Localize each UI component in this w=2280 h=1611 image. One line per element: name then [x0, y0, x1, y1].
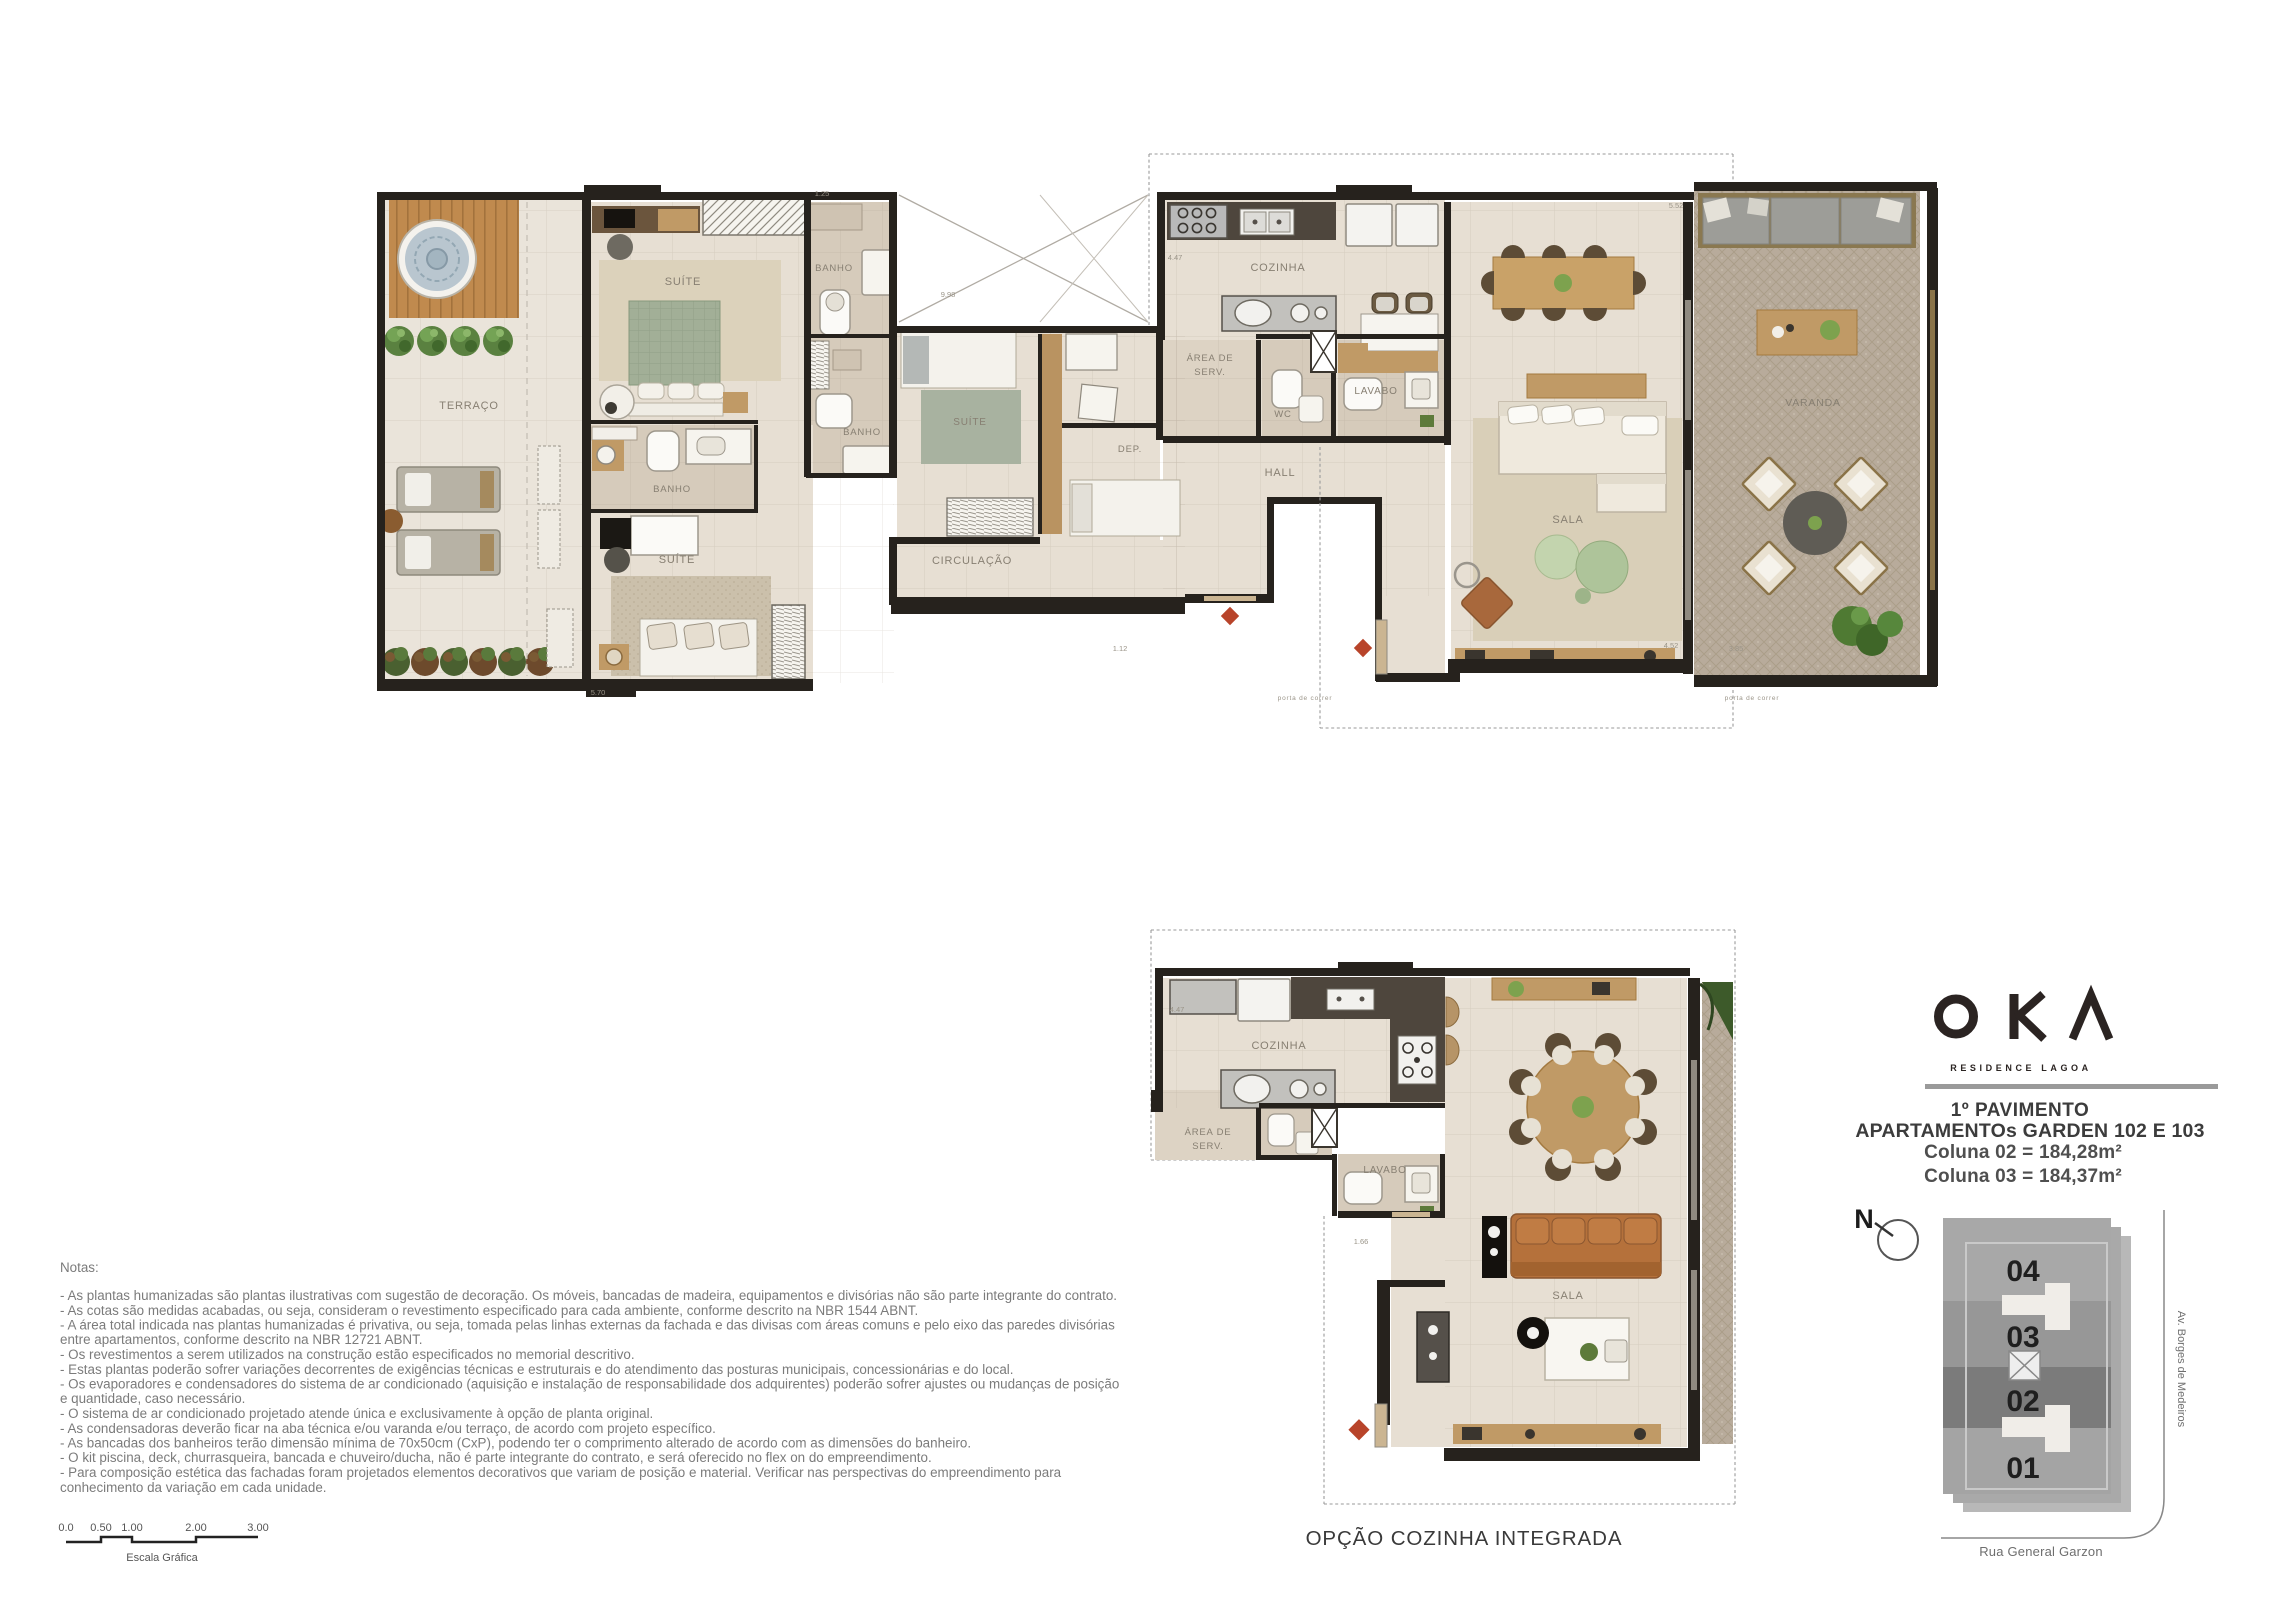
svg-text:entre apartamentos, conforme d: entre apartamentos, conforme descrito na…	[60, 1332, 422, 1347]
svg-text:5.70: 5.70	[591, 688, 606, 697]
svg-text:COZINHA: COZINHA	[1251, 1040, 1306, 1052]
svg-text:DEP.: DEP.	[1118, 444, 1142, 455]
svg-text:- Para composição estética das: - Para composição estética das fachadas …	[60, 1465, 1062, 1480]
svg-text:0.0: 0.0	[58, 1522, 73, 1534]
svg-text:TERRAÇO: TERRAÇO	[439, 400, 498, 412]
svg-text:0.50: 0.50	[90, 1522, 111, 1534]
svg-text:BANHO: BANHO	[653, 484, 691, 495]
svg-text:3.85: 3.85	[1729, 644, 1744, 653]
svg-text:e quantidade, caso necessário.: e quantidade, caso necessário.	[60, 1391, 245, 1406]
svg-text:LAVABO: LAVABO	[1354, 386, 1397, 397]
svg-text:Escala Gráfica: Escala Gráfica	[126, 1552, 198, 1564]
svg-text:Coluna 02 = 184,28m²: Coluna 02 = 184,28m²	[1924, 1142, 2122, 1163]
svg-text:1.00: 1.00	[121, 1522, 142, 1534]
svg-text:Notas:: Notas:	[60, 1260, 99, 1275]
svg-text:02: 02	[2006, 1385, 2039, 1418]
svg-text:APARTAMENTOs GARDEN 102 E 103: APARTAMENTOs GARDEN 102 E 103	[1855, 1120, 2204, 1142]
svg-text:CIRCULAÇÃO: CIRCULAÇÃO	[932, 554, 1012, 567]
svg-text:1º PAVIMENTO: 1º PAVIMENTO	[1951, 1100, 2090, 1121]
svg-text:4.52: 4.52	[1664, 641, 1679, 650]
svg-text:5.52: 5.52	[1669, 201, 1684, 210]
svg-text:ÁREA DE: ÁREA DE	[1185, 1127, 1232, 1138]
svg-text:SUÍTE: SUÍTE	[665, 275, 701, 288]
svg-text:OPÇÃO COZINHA INTEGRADA: OPÇÃO COZINHA INTEGRADA	[1306, 1527, 1623, 1550]
svg-text:- Os revestimentos a serem uti: - Os revestimentos a serem utilizados na…	[60, 1347, 635, 1362]
svg-text:4.47: 4.47	[1168, 253, 1183, 262]
svg-text:- O kit piscina, deck, churras: - O kit piscina, deck, churrasqueira, ba…	[60, 1450, 932, 1465]
svg-text:1.25: 1.25	[815, 189, 830, 198]
svg-text:porta de correr: porta de correr	[1725, 695, 1780, 702]
svg-text:VARANDA: VARANDA	[1785, 397, 1841, 409]
svg-text:SALA: SALA	[1552, 514, 1583, 526]
svg-text:ÁREA DE: ÁREA DE	[1187, 353, 1234, 364]
svg-text:4.47: 4.47	[1170, 1005, 1185, 1014]
svg-text:porta de correr: porta de correr	[1278, 695, 1333, 702]
svg-text:- As condensadoras deverão fic: - As condensadoras deverão ficar na aba …	[60, 1421, 716, 1436]
svg-text:HALL: HALL	[1265, 467, 1296, 479]
svg-text:RESIDENCE LAGOA: RESIDENCE LAGOA	[1950, 1063, 2092, 1073]
svg-text:1.12: 1.12	[1113, 644, 1128, 653]
svg-text:- A área total indicada nas pl: - A área total indicada nas plantas huma…	[60, 1318, 1115, 1333]
svg-text:Rua General Garzon: Rua General Garzon	[1979, 1544, 2103, 1559]
svg-text:SERV.: SERV.	[1192, 1141, 1223, 1152]
svg-text:2.00: 2.00	[185, 1522, 206, 1534]
svg-text:04: 04	[2006, 1255, 2040, 1288]
svg-text:BANHO: BANHO	[843, 427, 881, 438]
svg-text:- As bancadas dos banheiros te: - As bancadas dos banheiros terão dimens…	[60, 1436, 971, 1451]
svg-text:- Os evaporadores e condensado: - Os evaporadores e condensadores do sis…	[60, 1377, 1119, 1392]
svg-text:SUÍTE: SUÍTE	[659, 553, 695, 566]
svg-text:- Estas plantas poderão sofrer: - Estas plantas poderão sofrer variações…	[60, 1362, 1014, 1377]
svg-text:3.00: 3.00	[247, 1522, 268, 1534]
svg-text:LAVABO: LAVABO	[1363, 1165, 1406, 1176]
svg-text:conhecimento da variação em ca: conhecimento da variação em cada unidade…	[60, 1480, 327, 1495]
svg-text:SALA: SALA	[1552, 1290, 1583, 1302]
svg-text:N: N	[1854, 1204, 1874, 1234]
svg-text:COZINHA: COZINHA	[1250, 262, 1305, 274]
svg-text:Coluna 03 = 184,37m²: Coluna 03 = 184,37m²	[1924, 1166, 2122, 1187]
svg-text:- O sistema de ar condicionado: - O sistema de ar condicionado projetado…	[60, 1406, 653, 1421]
svg-text:SUÍTE: SUÍTE	[953, 415, 986, 428]
svg-text:WC: WC	[1274, 409, 1291, 420]
svg-text:BANHO: BANHO	[815, 263, 853, 274]
svg-text:Av. Borges de Medeiros: Av. Borges de Medeiros	[2175, 1311, 2187, 1428]
svg-text:1.66: 1.66	[1354, 1237, 1369, 1246]
svg-text:- As cotas são medidas acabada: - As cotas são medidas acabadas, ou seja…	[60, 1303, 918, 1318]
svg-text:9.98: 9.98	[941, 290, 956, 299]
svg-text:03: 03	[2006, 1321, 2039, 1354]
svg-text:SERV.: SERV.	[1194, 367, 1225, 378]
svg-text:- As plantas humanizadas são p: - As plantas humanizadas são plantas ilu…	[60, 1288, 1117, 1303]
svg-text:01: 01	[2006, 1452, 2039, 1485]
